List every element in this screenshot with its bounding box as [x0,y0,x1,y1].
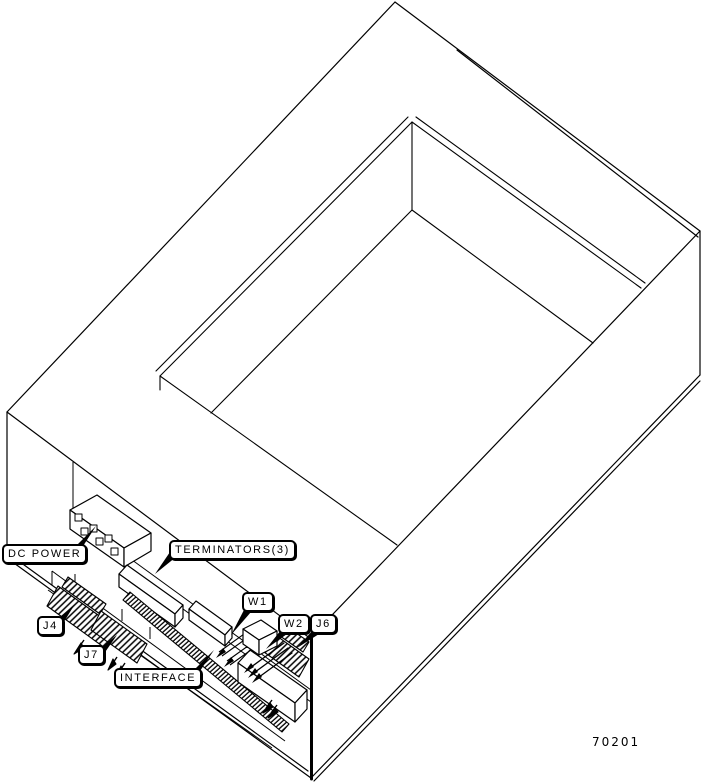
callout-interface: INTERFACE [114,668,202,688]
callout-j6: J6 [310,614,337,634]
isometric-enclosure-drawing [0,0,702,783]
callout-dc-power: DC POWER [2,544,87,564]
callout-w2: W2 [278,614,310,634]
callout-j7: J7 [78,645,105,665]
figure-number: 70201 [592,735,640,749]
callout-terminators: TERMINATORS(3) [169,540,296,560]
callout-j4: J4 [37,616,64,636]
technical-illustration-page: DC POWER TERMINATORS(3) W1 W2 J6 J4 J7 I… [0,0,702,783]
top-opening-recess [156,117,645,545]
callout-w1: W1 [242,592,274,612]
